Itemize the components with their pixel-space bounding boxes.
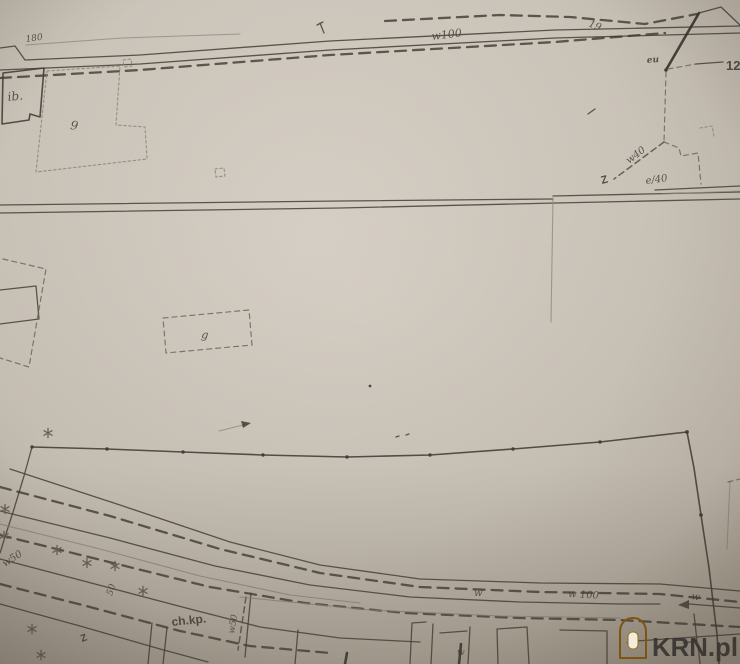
survey-node	[699, 513, 703, 517]
survey-node	[345, 455, 348, 458]
survey-node	[664, 68, 668, 72]
survey-node	[181, 450, 184, 453]
map-photo: 180 w100 19 ib. 9 eu 12 Z w40 e/40	[0, 0, 740, 664]
survey-node	[685, 430, 689, 434]
survey-node	[511, 447, 514, 450]
building-label: ib.	[7, 88, 24, 104]
survey-node	[428, 453, 431, 456]
survey-node	[261, 453, 264, 456]
cadastral-map-canvas: 180 w100 19 ib. 9 eu 12 Z w40 e/40	[0, 0, 740, 664]
point-mark	[369, 385, 372, 388]
watermark-brand: KRN.pl	[652, 632, 738, 662]
point-label: eu	[646, 55, 660, 66]
parcel-number: 12	[726, 58, 740, 73]
pipe-label: w	[474, 588, 483, 599]
shed-label: g	[201, 328, 209, 342]
survey-node	[598, 440, 601, 443]
survey-node	[105, 447, 108, 450]
survey-node	[30, 445, 33, 448]
house-window	[628, 632, 638, 649]
pipe-diameter-label: w 100	[568, 589, 600, 602]
